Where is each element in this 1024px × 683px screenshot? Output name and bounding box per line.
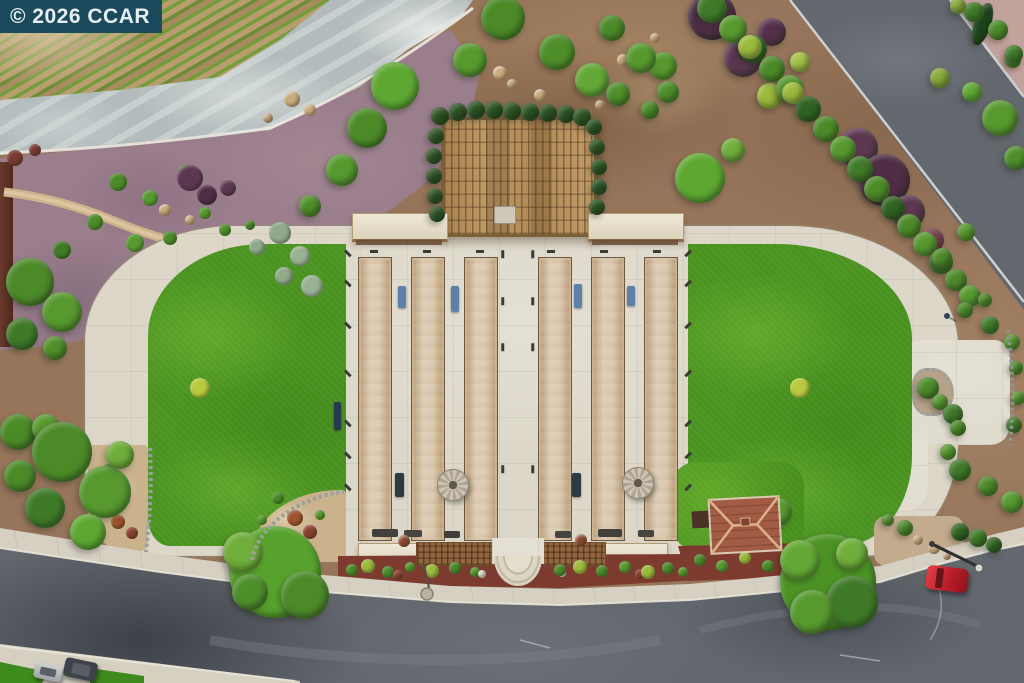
detail-overlay xyxy=(0,0,1024,683)
street-light xyxy=(929,541,983,572)
lamp-post xyxy=(421,564,433,600)
rock-border xyxy=(1008,330,1012,445)
pedestrian xyxy=(944,313,956,321)
aerial-photo: © 2026 CCAR xyxy=(0,0,1024,683)
rock-border xyxy=(252,492,344,560)
pavilion-roof xyxy=(709,496,782,554)
rock-border xyxy=(146,448,151,552)
copyright-watermark: © 2026 CCAR xyxy=(0,0,162,33)
watermark-text: © 2026 CCAR xyxy=(10,5,150,28)
